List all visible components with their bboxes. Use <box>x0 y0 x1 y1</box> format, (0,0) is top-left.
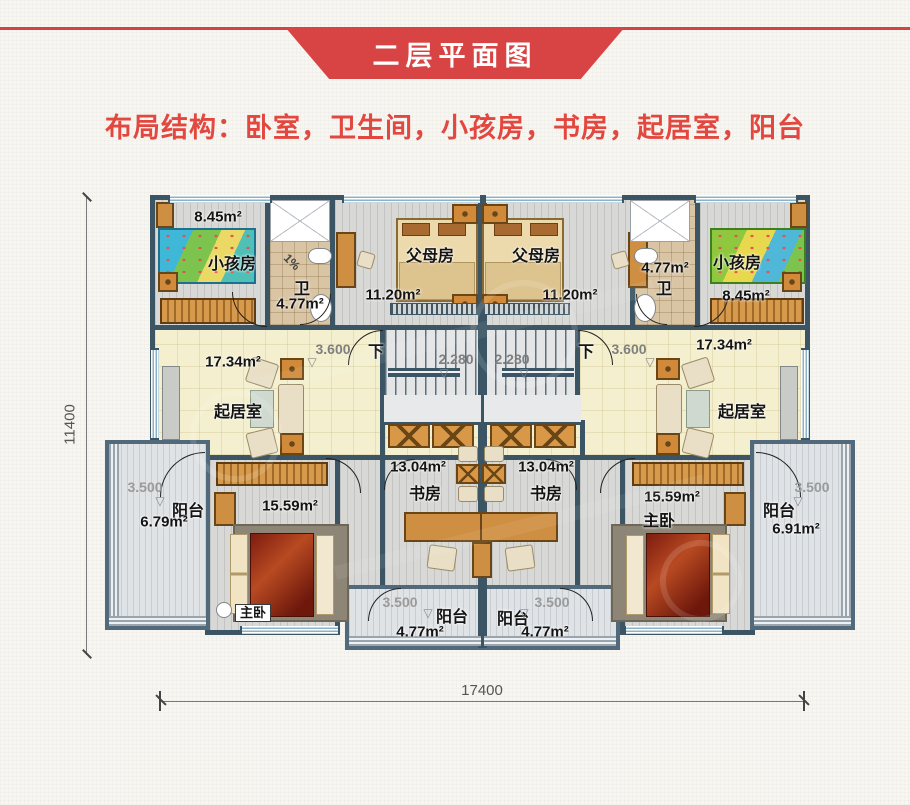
parents-pillow-right-a <box>494 223 522 236</box>
label-bath-right: 卫 <box>656 275 672 299</box>
stair-landing-left <box>384 395 481 422</box>
area-master-left: 15.59m² <box>262 498 318 515</box>
area-balcony-right: 6.91m² <box>772 521 820 538</box>
area-parents-left: 11.20m² <box>365 287 420 304</box>
area-bath-right: 4.77m² <box>641 260 689 277</box>
coffee-table-right <box>686 390 710 428</box>
area-kids-left: 8.45m² <box>194 209 242 226</box>
overall-height-label: 11400 <box>62 395 79 455</box>
study-seat-right-b <box>484 486 504 502</box>
master-pillows-right <box>712 534 730 614</box>
dim-balcony-bottom-left: 3.500 <box>382 594 417 610</box>
window-living-left <box>151 348 159 440</box>
dim-arrow-icon <box>307 355 316 369</box>
kids-nightstand-left <box>156 202 174 228</box>
parents-nightstand-left-a <box>452 204 478 224</box>
dimension-line-width <box>160 701 805 702</box>
window-kids-right <box>694 195 798 203</box>
kids-nightstand-right <box>790 202 808 228</box>
hall-cabinet-right-a <box>490 424 532 448</box>
area-master-right: 15.59m² <box>644 489 700 506</box>
kids-stool-right <box>782 272 802 292</box>
master-pillows-left <box>230 534 248 614</box>
dim-tick <box>82 649 92 659</box>
area-living-right: 17.34m² <box>696 337 752 354</box>
label-study-left: 书房 <box>409 480 441 504</box>
label-kids-right: 小孩房 <box>713 249 761 273</box>
dim-arrow-icon <box>519 366 528 380</box>
railing-balcony-left-bottom <box>109 616 206 626</box>
page-title: 二层平面图 <box>373 34 538 73</box>
master-dresser-right <box>724 492 746 526</box>
master-wardrobe-left <box>216 462 328 486</box>
parents-nightstand-right-a <box>482 204 508 224</box>
area-study-left: 13.04m² <box>390 459 446 476</box>
window-kids-left <box>168 195 272 203</box>
hall-cabinet-left-a <box>388 424 430 448</box>
railing-balcony-right-side <box>841 444 851 626</box>
master-bed-foot-right <box>626 535 644 615</box>
dim-tick <box>82 192 92 202</box>
area-balcony-bottom-right: 4.77m² <box>521 624 569 641</box>
master-wardrobe-right <box>632 462 744 486</box>
label-living-right: 起居室 <box>718 398 766 422</box>
hall-cabinet-left-b <box>432 424 474 448</box>
stairs-down-marker-left: 下 <box>368 338 384 362</box>
study-table-left <box>456 464 480 484</box>
area-bath-left: 4.77m² <box>276 296 324 313</box>
parents-desk-left <box>336 232 356 288</box>
parents-pillow-right-b <box>530 223 558 236</box>
stair-landing-right <box>484 395 581 422</box>
dim-living-left: 3.600 <box>315 341 350 357</box>
area-balcony-bottom-left: 4.77m² <box>396 624 444 641</box>
study-seat-left-a <box>458 446 478 462</box>
stair-rail-left <box>388 368 460 377</box>
window-master-right <box>624 626 724 634</box>
side-table-left-b <box>280 433 304 455</box>
kids-stool-left <box>158 272 178 292</box>
sofa-left <box>278 384 304 434</box>
study-desk-leg <box>472 542 492 578</box>
radiator-right <box>482 303 570 315</box>
parents-pillow-left-b <box>438 223 466 236</box>
study-chair-left <box>426 544 457 572</box>
study-table-right <box>482 464 506 484</box>
dim-arrow-icon <box>439 366 448 380</box>
label-master-left: 主卧 <box>235 604 271 622</box>
label-parents-right: 父母房 <box>512 242 560 266</box>
window-parents-right <box>484 195 624 203</box>
layout-subtitle: 布局结构：卧室，卫生间，小孩房，书房，起居室，阳台 <box>0 106 910 145</box>
dim-arrow-icon <box>519 606 528 620</box>
label-balcony-right: 阳台 <box>763 497 795 521</box>
area-parents-right: 11.20m² <box>542 287 597 304</box>
area-kids-right: 8.45m² <box>722 288 770 305</box>
stairs-down-marker-right: 下 <box>578 338 594 362</box>
dim-living-right: 3.600 <box>611 341 646 357</box>
radiator-left <box>390 303 478 315</box>
dim-arrow-icon <box>155 494 164 508</box>
window-master-left <box>240 626 340 634</box>
tv-cabinet-left <box>162 366 180 440</box>
label-parents-left: 父母房 <box>406 242 454 266</box>
hall-cabinet-right-b <box>534 424 576 448</box>
shower-right <box>630 200 690 242</box>
area-living-left: 17.34m² <box>205 354 261 371</box>
dim-arrow-icon <box>423 606 432 620</box>
master-dresser-left <box>214 492 236 526</box>
study-desk-left <box>404 512 482 542</box>
area-balcony-left: 6.79m² <box>140 514 188 531</box>
dim-balcony-right: 3.500 <box>794 479 829 495</box>
dim-balcony-bottom-right: 3.500 <box>534 594 569 610</box>
floor-plan-page: 二层平面图 布局结构：卧室，卫生间，小孩房，书房，起居室，阳台 <box>0 0 910 805</box>
window-parents-left <box>342 195 482 203</box>
railing-balcony-left-side <box>109 444 119 626</box>
railing-balcony-right-bottom <box>754 616 851 626</box>
label-living-left: 起居室 <box>214 398 262 422</box>
label-master-right: 主卧 <box>643 507 675 531</box>
study-seat-left-b <box>458 486 478 502</box>
label-study-right: 书房 <box>530 480 562 504</box>
label-kids-left: 小孩房 <box>208 250 256 274</box>
dim-stair-left: 2.280 <box>438 351 473 367</box>
dim-arrow-icon <box>645 355 654 369</box>
side-table-right-b <box>656 433 680 455</box>
dim-arrow-icon <box>793 494 802 508</box>
sofa-right <box>656 384 682 434</box>
dim-tick <box>155 694 166 705</box>
study-seat-right-a <box>484 446 504 462</box>
study-desk-right <box>480 512 558 542</box>
shower-left <box>270 200 330 242</box>
side-table-left-a <box>280 358 304 380</box>
stair-rail-right <box>502 368 574 377</box>
master-bed-cover-right <box>646 533 710 617</box>
parents-pillow-left-a <box>402 223 430 236</box>
toilet-left <box>308 248 332 264</box>
study-chair-right <box>504 544 535 572</box>
tv-cabinet-right <box>780 366 798 440</box>
window-living-right <box>801 348 809 440</box>
side-table-right-a <box>656 358 680 380</box>
dimension-line-height <box>86 197 87 655</box>
dim-balcony-left: 3.500 <box>127 479 162 495</box>
overall-width-label: 17400 <box>437 682 527 699</box>
title-banner: 二层平面图 <box>285 27 625 79</box>
dim-stair-right: 2.280 <box>494 351 529 367</box>
master-stool-left <box>216 602 232 618</box>
area-study-right: 13.04m² <box>518 459 574 476</box>
master-bed-foot-left <box>316 535 334 615</box>
